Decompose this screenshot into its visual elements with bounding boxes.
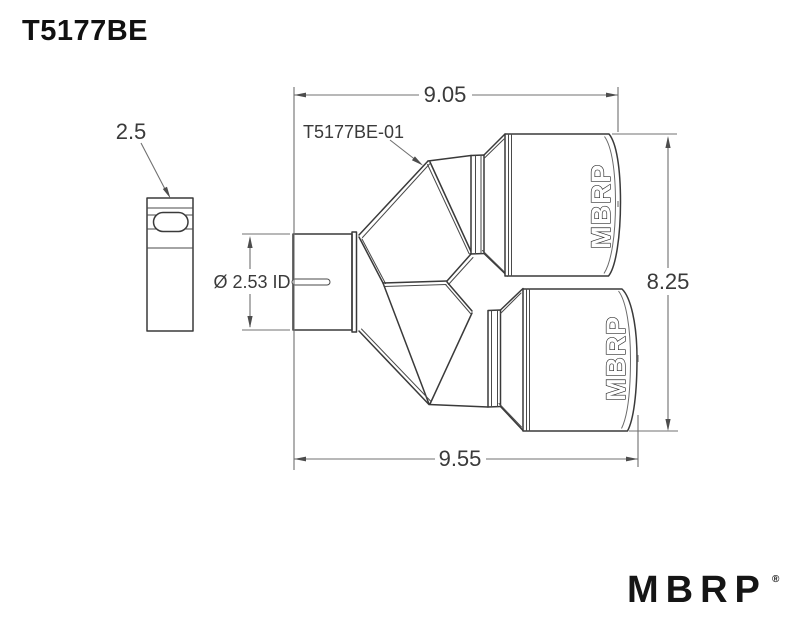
brand-logo: MBRP ® (627, 569, 780, 611)
crotch-line-upper (359, 237, 383, 283)
lower-tip-brand-text: MBRP (601, 315, 631, 401)
clamp-size-value: 2.5 (116, 119, 147, 144)
dimension-inlet-id-value: Ø 2.53 ID (213, 272, 290, 292)
dimension-top-width-value: 9.05 (424, 82, 467, 107)
crotch-mid-line (383, 281, 447, 283)
exhaust-tip-drawing: MBRP MBRP 9.05 9.55 8.25 (0, 0, 800, 618)
clamp-side-view (147, 198, 193, 331)
part-label-text: T5177BE-01 (303, 122, 404, 142)
arrowhead-up (247, 236, 252, 248)
lower-branch-bottom-edge (429, 405, 488, 408)
technical-drawing-page: MBRP MBRP 9.05 9.55 8.25 (0, 0, 800, 618)
page-title: T5177BE (22, 15, 148, 47)
upper-collar (470, 134, 508, 276)
lower-cone-top (501, 289, 524, 311)
part-label-callout: T5177BE-01 (303, 122, 423, 166)
registered-trademark-icon: ® (772, 574, 780, 585)
arrowhead-down (247, 316, 252, 328)
lower-cone-bottom-inner (499, 404, 522, 428)
lower-branch-mouth-line (430, 313, 472, 404)
upper-cone-top (484, 134, 505, 155)
brand-logo-text: MBRP (627, 569, 767, 611)
lower-branch-upper-wall (447, 282, 472, 311)
clamp-leader-line (141, 143, 166, 191)
arrowhead-left (294, 457, 306, 462)
crotch-line-lower (383, 283, 429, 404)
upper-branch-lower-wall-inner (449, 258, 474, 285)
upper-branch-wall-inner (363, 164, 430, 238)
upper-tip: MBRP (505, 134, 621, 276)
dimension-inlet-diameter: Ø 2.53 ID (213, 234, 290, 330)
upper-branch-wall (359, 161, 428, 235)
lower-cone-top-inner (501, 293, 522, 314)
lower-collar (488, 289, 523, 431)
upper-branch-lower-wall (447, 254, 471, 281)
upper-cone-bottom (484, 254, 508, 277)
inlet-tube (292, 232, 357, 332)
upper-branch-mouth-line-inner (428, 165, 470, 254)
lower-branch-wall-inner (362, 329, 432, 402)
upper-collar-fill (471, 156, 484, 254)
inlet-slit (292, 279, 330, 285)
clamp-leader-arrowhead (163, 187, 171, 199)
y-junction (359, 156, 488, 408)
arrowhead-left (294, 93, 306, 98)
clamp-size-callout: 2.5 (116, 119, 171, 199)
arrowhead-right (606, 93, 618, 98)
lower-tip: MBRP (523, 289, 637, 431)
lower-branch-upper-wall-inner (446, 285, 471, 314)
crotch-mid-line-inner (384, 285, 446, 287)
arrowhead-up (665, 136, 670, 148)
arrowhead-right (626, 457, 638, 462)
inlet-flare (352, 232, 357, 332)
crotch-line-upper-inner (362, 239, 386, 284)
part-label-leader-line (390, 140, 417, 161)
lower-cone-bottom (501, 407, 524, 431)
dimension-height-value: 8.25 (647, 269, 690, 294)
lower-collar-fill (488, 311, 501, 407)
dimension-bottom-width-value: 9.55 (439, 446, 482, 471)
upper-branch-mouth-line (430, 162, 472, 253)
upper-cone-top-inner (484, 139, 504, 159)
upper-branch-top-edge (428, 156, 471, 162)
lower-branch-wall (359, 331, 429, 404)
arrowhead-down (665, 419, 670, 431)
upper-cone-bottom-inner (483, 251, 506, 274)
upper-tip-brand-text: MBRP (586, 163, 616, 249)
clamp-slot (154, 213, 189, 232)
